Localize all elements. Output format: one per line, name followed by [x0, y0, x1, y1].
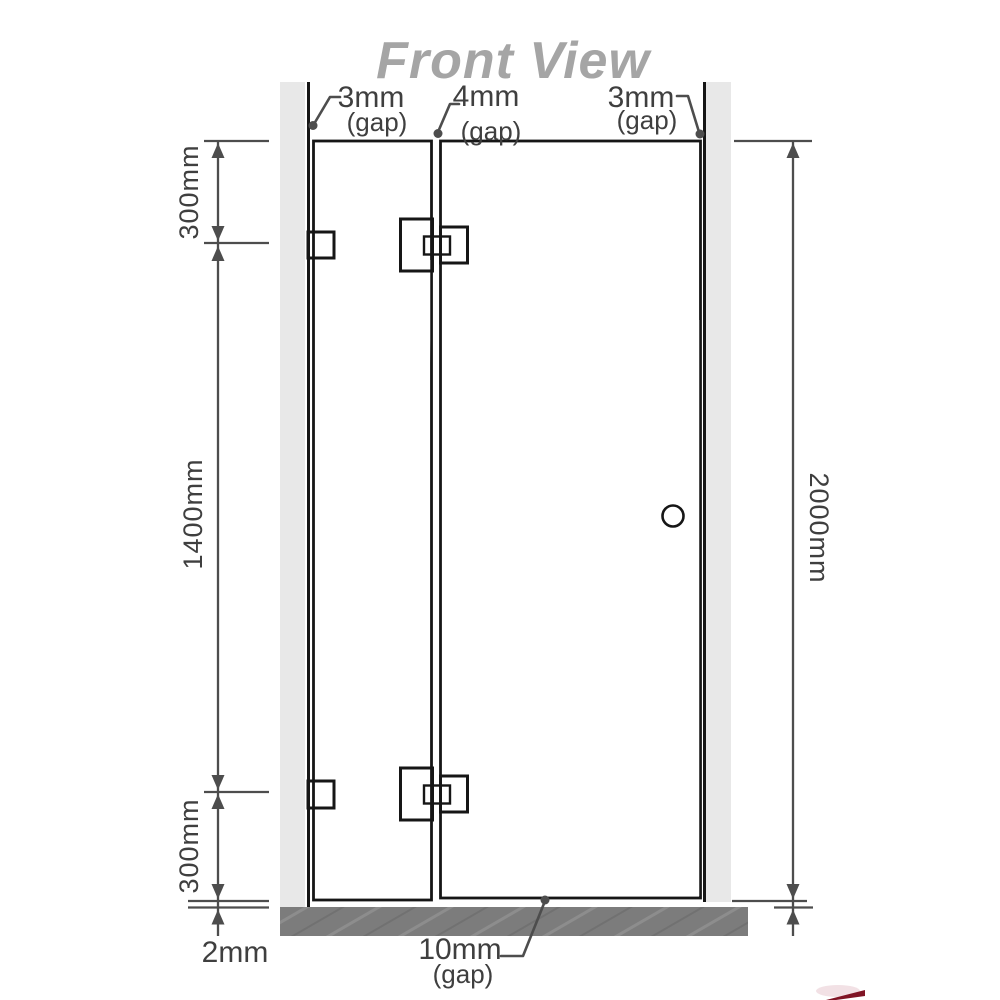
right-wall: [705, 82, 732, 902]
label-gap-bottom-door-suffix: (gap): [433, 959, 494, 989]
wall-bracket-top: [308, 232, 334, 258]
door-glass-reflections: [443, 320, 700, 896]
dimension-label-left-bottom: 300mm: [174, 798, 204, 893]
dimension-right: 2000mm: [732, 141, 834, 936]
floor-base: [280, 907, 748, 936]
label-gap-top-right-suffix: (gap): [617, 105, 678, 135]
glass-hinge-top: [401, 219, 468, 271]
front-view-diagram: 300mm 1400mm 300mm 2000mm 3mm (gap) 4mm …: [0, 0, 1000, 1000]
label-floor-gap-value: 2mm: [202, 936, 269, 969]
label-gap-top-middle-suffix: (gap): [461, 116, 522, 146]
dimension-label-left-middle: 1400mm: [178, 458, 208, 569]
door-knob: [663, 506, 684, 527]
dimension-label-left-top: 300mm: [174, 144, 204, 239]
dimension-left: 300mm 1400mm 300mm: [174, 141, 269, 936]
leader-gap-top-left: [314, 97, 340, 124]
dimension-label-right-total: 2000mm: [804, 472, 834, 583]
door-glass-panel: [441, 141, 701, 898]
left-wall: [280, 82, 309, 907]
diagram-canvas: 300mm 1400mm 300mm 2000mm 3mm (gap) 4mm …: [0, 0, 1000, 1000]
page-title: Front View: [376, 32, 652, 90]
label-gap-top-left-suffix: (gap): [347, 107, 408, 137]
logo-sliver: [816, 985, 865, 1000]
leader-gap-top-right: [677, 96, 699, 132]
